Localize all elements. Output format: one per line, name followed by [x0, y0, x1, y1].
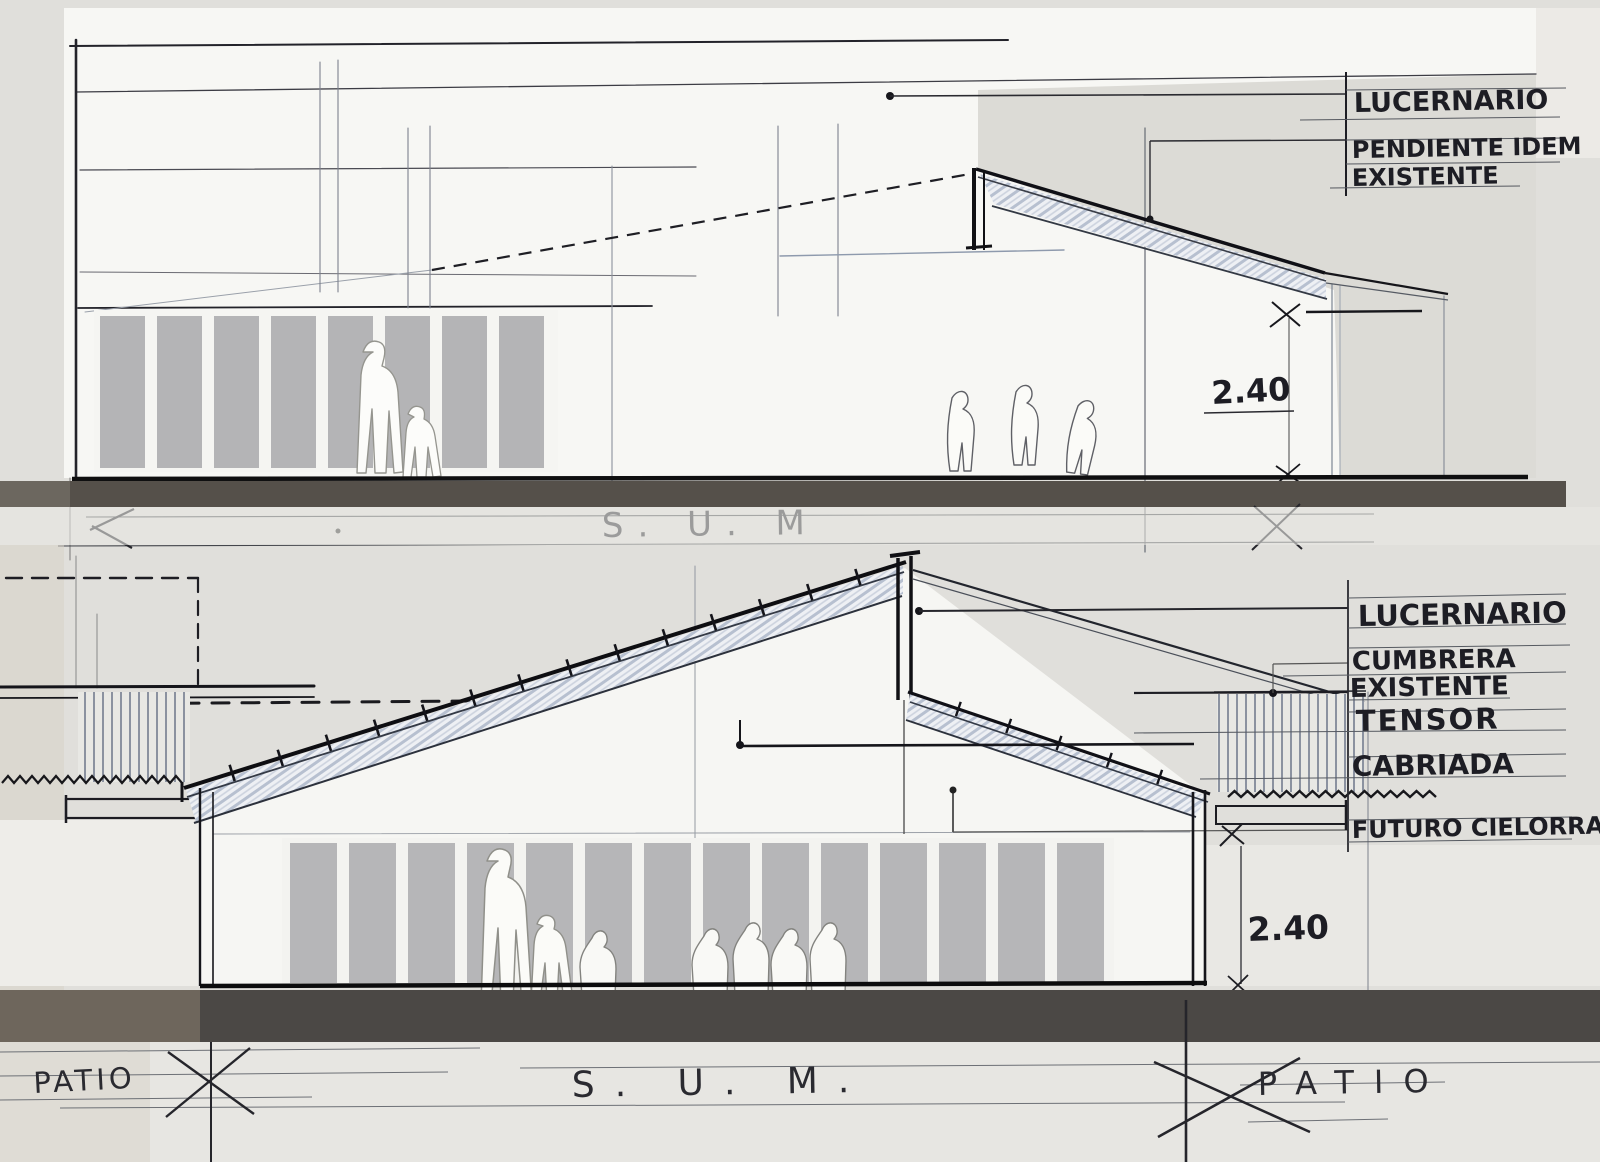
top-door-panels [94, 310, 558, 472]
bottom-dimension-240-text: 2.40 [1247, 907, 1330, 949]
bottom-room-label-sum: S. U. M. [571, 1060, 869, 1106]
bottom-room-label-patio-right: PATIO [1257, 1062, 1448, 1103]
architectural-sketch: LUCERNARIO PENDIENTE IDEM EXISTENTE 2.40 [0, 0, 1600, 1162]
bottom-section-drawing: LUCERNARIO CUMBRERA EXISTENTE TENSOR CAB… [0, 545, 1600, 1162]
top-dimension-240-text: 2.40 [1210, 370, 1291, 412]
bottom-callout-futuro-cielorraso-label: FUTURO CIELORRASO [1352, 811, 1600, 844]
top-section-drawing: LUCERNARIO PENDIENTE IDEM EXISTENTE 2.40 [0, 8, 1600, 560]
bottom-room-label-patio-left: PATIO [33, 1061, 137, 1100]
bottom-callout-cumbrera-label-line2: EXISTENTE [1350, 671, 1509, 704]
bottom-ground [0, 983, 1600, 1042]
bottom-callout-lucernario-label: LUCERNARIO [1358, 595, 1567, 633]
bottom-callout-cabriada-label: CABRIADA [1352, 747, 1515, 783]
top-callout-pendiente-label-line1: PENDIENTE IDEM [1352, 132, 1582, 164]
sketch-page: LUCERNARIO PENDIENTE IDEM EXISTENTE 2.40 [0, 0, 1600, 1162]
top-callout-pendiente-label-line2: EXISTENTE [1352, 161, 1499, 192]
top-height-dimension: 2.40 [1204, 370, 1294, 413]
bottom-callout-tensor-label: TENSOR [1356, 701, 1500, 738]
top-callout-lucernario-label: LUCERNARIO [1354, 85, 1549, 119]
patio-left-area [0, 820, 198, 986]
mid-strip [0, 507, 1600, 545]
